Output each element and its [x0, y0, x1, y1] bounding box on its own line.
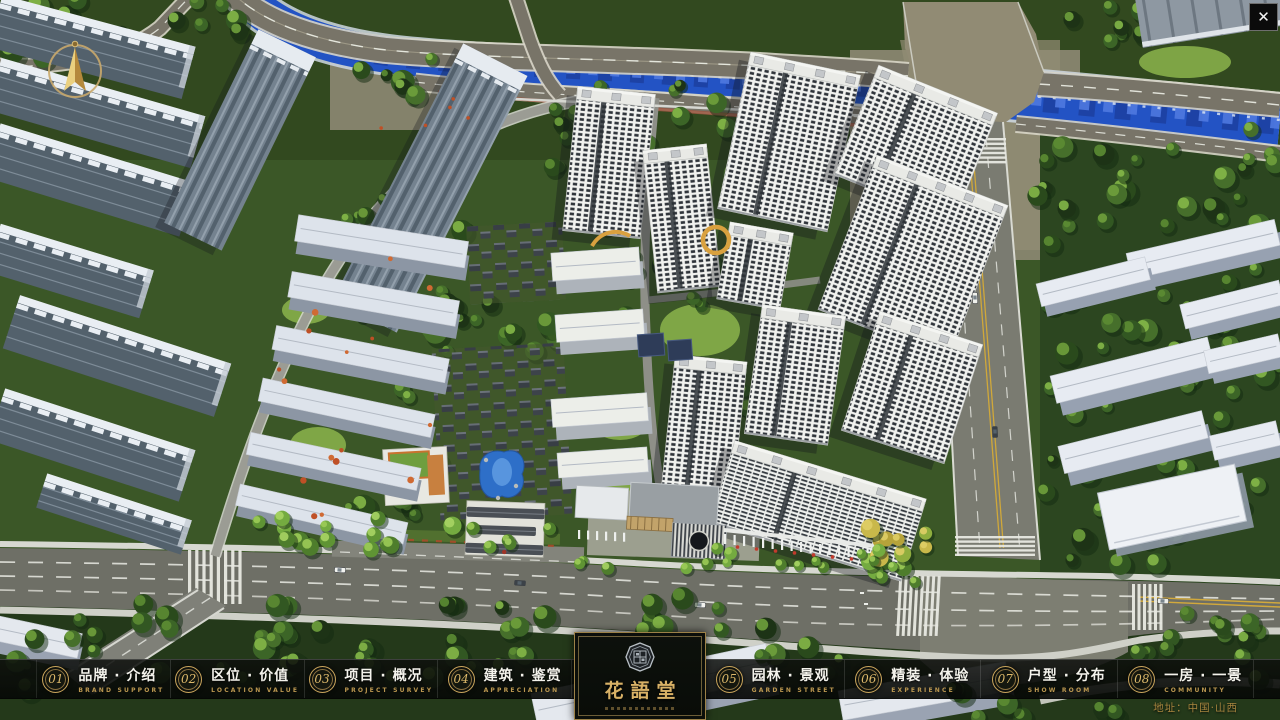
nav-number-badge: 07 [992, 666, 1019, 693]
nav-item-architecture[interactable]: 04 建筑 · 鉴赏 APPRECIATION [438, 660, 572, 698]
nav-label-cn: 区位 · 价值 [211, 665, 289, 685]
nav-number-badge: 08 [1128, 666, 1155, 693]
nav-group-left: 01 品牌 · 介绍 BRAND SUPPORT 02 区位 · 价值 LOCA… [36, 660, 572, 698]
close-icon: ✕ [1257, 10, 1270, 25]
nav-item-location[interactable]: 02 区位 · 价值 LOCATION VALUE [171, 660, 305, 698]
sales-presentation-screen: ✕ 01 品牌 · 介绍 BRAND SUPPORT 02 区位 · 价值 LO… [0, 0, 1280, 720]
masterplan-aerial-view [0, 0, 1280, 720]
nav-label-en: COMMUNITY [1164, 687, 1226, 694]
seal-icon [624, 641, 656, 673]
nav-label-en: SHOW ROOM [1028, 687, 1092, 694]
logo-tagline-rule [605, 707, 675, 710]
nav-label-cn: 户型 · 分布 [1028, 665, 1106, 685]
project-address: 地址：中国·山西 [1153, 700, 1238, 715]
project-name: 花語堂 [597, 676, 682, 703]
nav-number-badge: 05 [716, 666, 743, 693]
nav-item-floorplan[interactable]: 07 户型 · 分布 SHOW ROOM [981, 660, 1118, 698]
close-button[interactable]: ✕ [1249, 3, 1278, 31]
nav-label-cn: 建筑 · 鉴赏 [484, 665, 562, 685]
nav-label-en: GARDEN STREET [752, 687, 836, 694]
nav-number-badge: 04 [448, 666, 475, 693]
nav-label-en: PROJECT SURVEY [345, 687, 434, 694]
nav-label-en: EXPERIENCE [891, 687, 955, 694]
nav-item-views[interactable]: 08 一房 · 一景 COMMUNITY [1118, 660, 1255, 698]
nav-label-en: BRAND SUPPORT [78, 687, 164, 694]
nav-group-right: 05 园林 · 景观 GARDEN STREET 06 精装 · 体验 EXPE… [708, 660, 1254, 698]
nav-label-en: LOCATION VALUE [211, 687, 299, 694]
nav-label-cn: 品牌 · 介绍 [78, 665, 156, 685]
nav-label-cn: 精装 · 体验 [891, 665, 969, 685]
nav-item-interior[interactable]: 06 精装 · 体验 EXPERIENCE [845, 660, 982, 698]
nav-label-en: APPRECIATION [484, 687, 560, 694]
nav-item-garden[interactable]: 05 园林 · 景观 GARDEN STREET [708, 660, 845, 698]
nav-number-badge: 06 [855, 666, 882, 693]
nav-label-cn: 项目 · 概况 [345, 665, 423, 685]
nav-item-brand[interactable]: 01 品牌 · 介绍 BRAND SUPPORT [36, 660, 171, 698]
nav-number-badge: 03 [309, 666, 336, 693]
nav-number-badge: 01 [42, 666, 69, 693]
project-logo[interactable]: 花語堂 [574, 632, 706, 720]
nav-label-cn: 园林 · 景观 [752, 665, 830, 685]
nav-item-project[interactable]: 03 项目 · 概况 PROJECT SURVEY [305, 660, 439, 698]
nav-label-cn: 一房 · 一景 [1164, 665, 1242, 685]
nav-number-badge: 02 [175, 666, 202, 693]
